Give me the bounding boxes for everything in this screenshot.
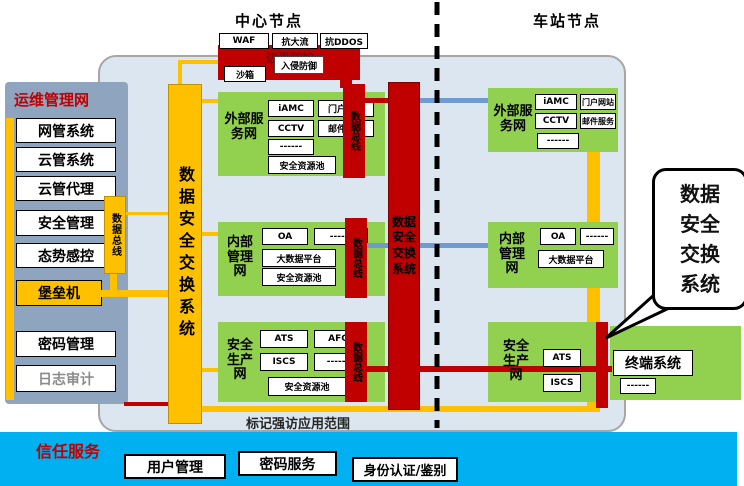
terminal-etc-box: ------	[620, 378, 656, 394]
station-production-label-wrap: 安全生产网	[496, 330, 536, 394]
terminal-system-label-box: 终端系统	[613, 350, 693, 376]
ops-network-title: 运维管理网	[14, 89, 89, 110]
ops-bus-link-line	[123, 212, 169, 215]
anti-flood-box: 抗大流	[272, 33, 318, 49]
station-prod-ats: ATS	[543, 349, 581, 367]
ops-item-audit: 日志审计	[16, 365, 116, 392]
station-ext-etc: ------	[537, 133, 579, 149]
center-bus-row3-label: 数据总线	[349, 342, 364, 382]
station-external-label-wrap: 外部服务网	[490, 92, 536, 148]
station-ext-portal: 门户网站	[580, 94, 616, 110]
yellow-stub-row1	[200, 99, 218, 103]
center-internal-label-wrap: 内部管理网	[222, 226, 258, 290]
ops-bus-tab: 数据总线	[104, 196, 126, 274]
center-external-label: 外部服务网	[222, 113, 266, 143]
center-int-bigdata: 大数据平台	[262, 249, 336, 267]
center-prod-iscs: ISCS	[260, 353, 308, 371]
center-internal-label: 内部管理网	[225, 236, 255, 281]
center-production-label: 安全生产网	[225, 339, 255, 384]
trust-password-service-box: 密码服务	[238, 451, 337, 476]
center-int-pool: 安全资源池	[262, 268, 336, 286]
center-ext-cctv: CCTV	[268, 120, 314, 137]
ops-item-bastion: 堡垒机	[16, 280, 102, 306]
link-row2-right	[418, 243, 488, 248]
center-ext-etc: ------	[268, 139, 314, 155]
center-bus-row2-label: 数据总线	[349, 238, 364, 278]
center-prod-ats: ATS	[260, 330, 308, 348]
center-int-oa: OA	[262, 228, 308, 245]
station-external-label: 外部服务网	[491, 105, 535, 135]
ops-item-cloudagent: 云管代理	[16, 176, 116, 201]
station-production-label: 安全生产网	[501, 340, 531, 385]
station-int-bigdata: 大数据平台	[538, 250, 604, 268]
central-exchange-bar: 数据安全交换系统	[388, 82, 420, 410]
center-production-label-wrap: 安全生产网	[222, 326, 258, 396]
sandbox-box: 沙箱	[224, 66, 266, 82]
center-bus-row1: 数据总线	[343, 84, 365, 178]
station-int-etc: ------	[580, 228, 614, 245]
terminal-red-connector	[596, 322, 608, 408]
ops-item-situation: 态势感控	[16, 243, 116, 268]
station-int-oa: OA	[540, 228, 576, 245]
scope-note: 标记强访应用范围	[246, 413, 350, 432]
station-prod-iscs: ISCS	[543, 374, 581, 392]
center-bus-row2: 数据总线	[345, 218, 367, 298]
center-node-label: 中心节点	[235, 10, 303, 31]
station-internal-label-wrap: 内部管理网	[492, 226, 532, 284]
station-ext-cctv: CCTV	[535, 113, 577, 129]
station-internal-label: 内部管理网	[497, 233, 527, 278]
ops-item-nms: 网管系统	[16, 118, 116, 143]
center-bus-row3: 数据总线	[345, 322, 367, 402]
data-exchange-bar: 数据安全交换系统	[168, 84, 202, 424]
trust-services-title: 信任服务	[36, 438, 100, 462]
bottom-left-red-stub	[124, 402, 168, 406]
diagram-stage: 中心节点 车站节点 运维管理网 网管系统 云管系统 云管代理 安全管理 态势感控…	[0, 0, 744, 486]
data-exchange-bar-label: 数据安全交换系统	[173, 166, 197, 342]
center-bus-row1-label: 数据总线	[347, 111, 362, 151]
station-node-label: 车站节点	[533, 10, 601, 31]
yellow-stub-row3	[200, 368, 218, 372]
intrusion-prevention-box: 入侵防御	[274, 56, 324, 74]
station-ext-iamc: iAMC	[535, 94, 577, 110]
central-exchange-label: 数据安全交换系统	[391, 215, 417, 277]
center-prod-pool: 安全资源池	[268, 377, 346, 396]
ops-item-cloudmgr: 云管系统	[16, 147, 116, 172]
ops-item-password: 密码管理	[16, 331, 116, 357]
ops-item-security: 安全管理	[16, 210, 116, 236]
ops-left-yellow-strip	[6, 118, 14, 400]
center-ext-pool: 安全资源池	[268, 156, 336, 174]
yellow-stub-row2	[200, 232, 218, 236]
callout-bubble: 数据安全交换系统	[652, 168, 744, 310]
callout-label: 数据安全交换系统	[677, 179, 723, 299]
trust-identity-auth-box: 身份认证/鉴别	[352, 457, 458, 482]
station-ext-mail: 邮件服务	[580, 113, 616, 129]
exchange-bar-top-stub-h	[178, 60, 220, 64]
link-row2-left	[367, 243, 388, 248]
link-row1-left	[365, 98, 388, 103]
center-external-label-wrap: 外部服务网	[220, 96, 268, 160]
bastion-elbow-h	[100, 290, 168, 297]
waf-box: WAF	[219, 33, 269, 49]
trust-user-mgmt-box: 用户管理	[124, 454, 226, 479]
anti-ddos-box: 抗DDOS	[320, 33, 368, 49]
link-row1-right	[418, 98, 488, 103]
center-ext-iamc: iAMC	[268, 100, 314, 117]
